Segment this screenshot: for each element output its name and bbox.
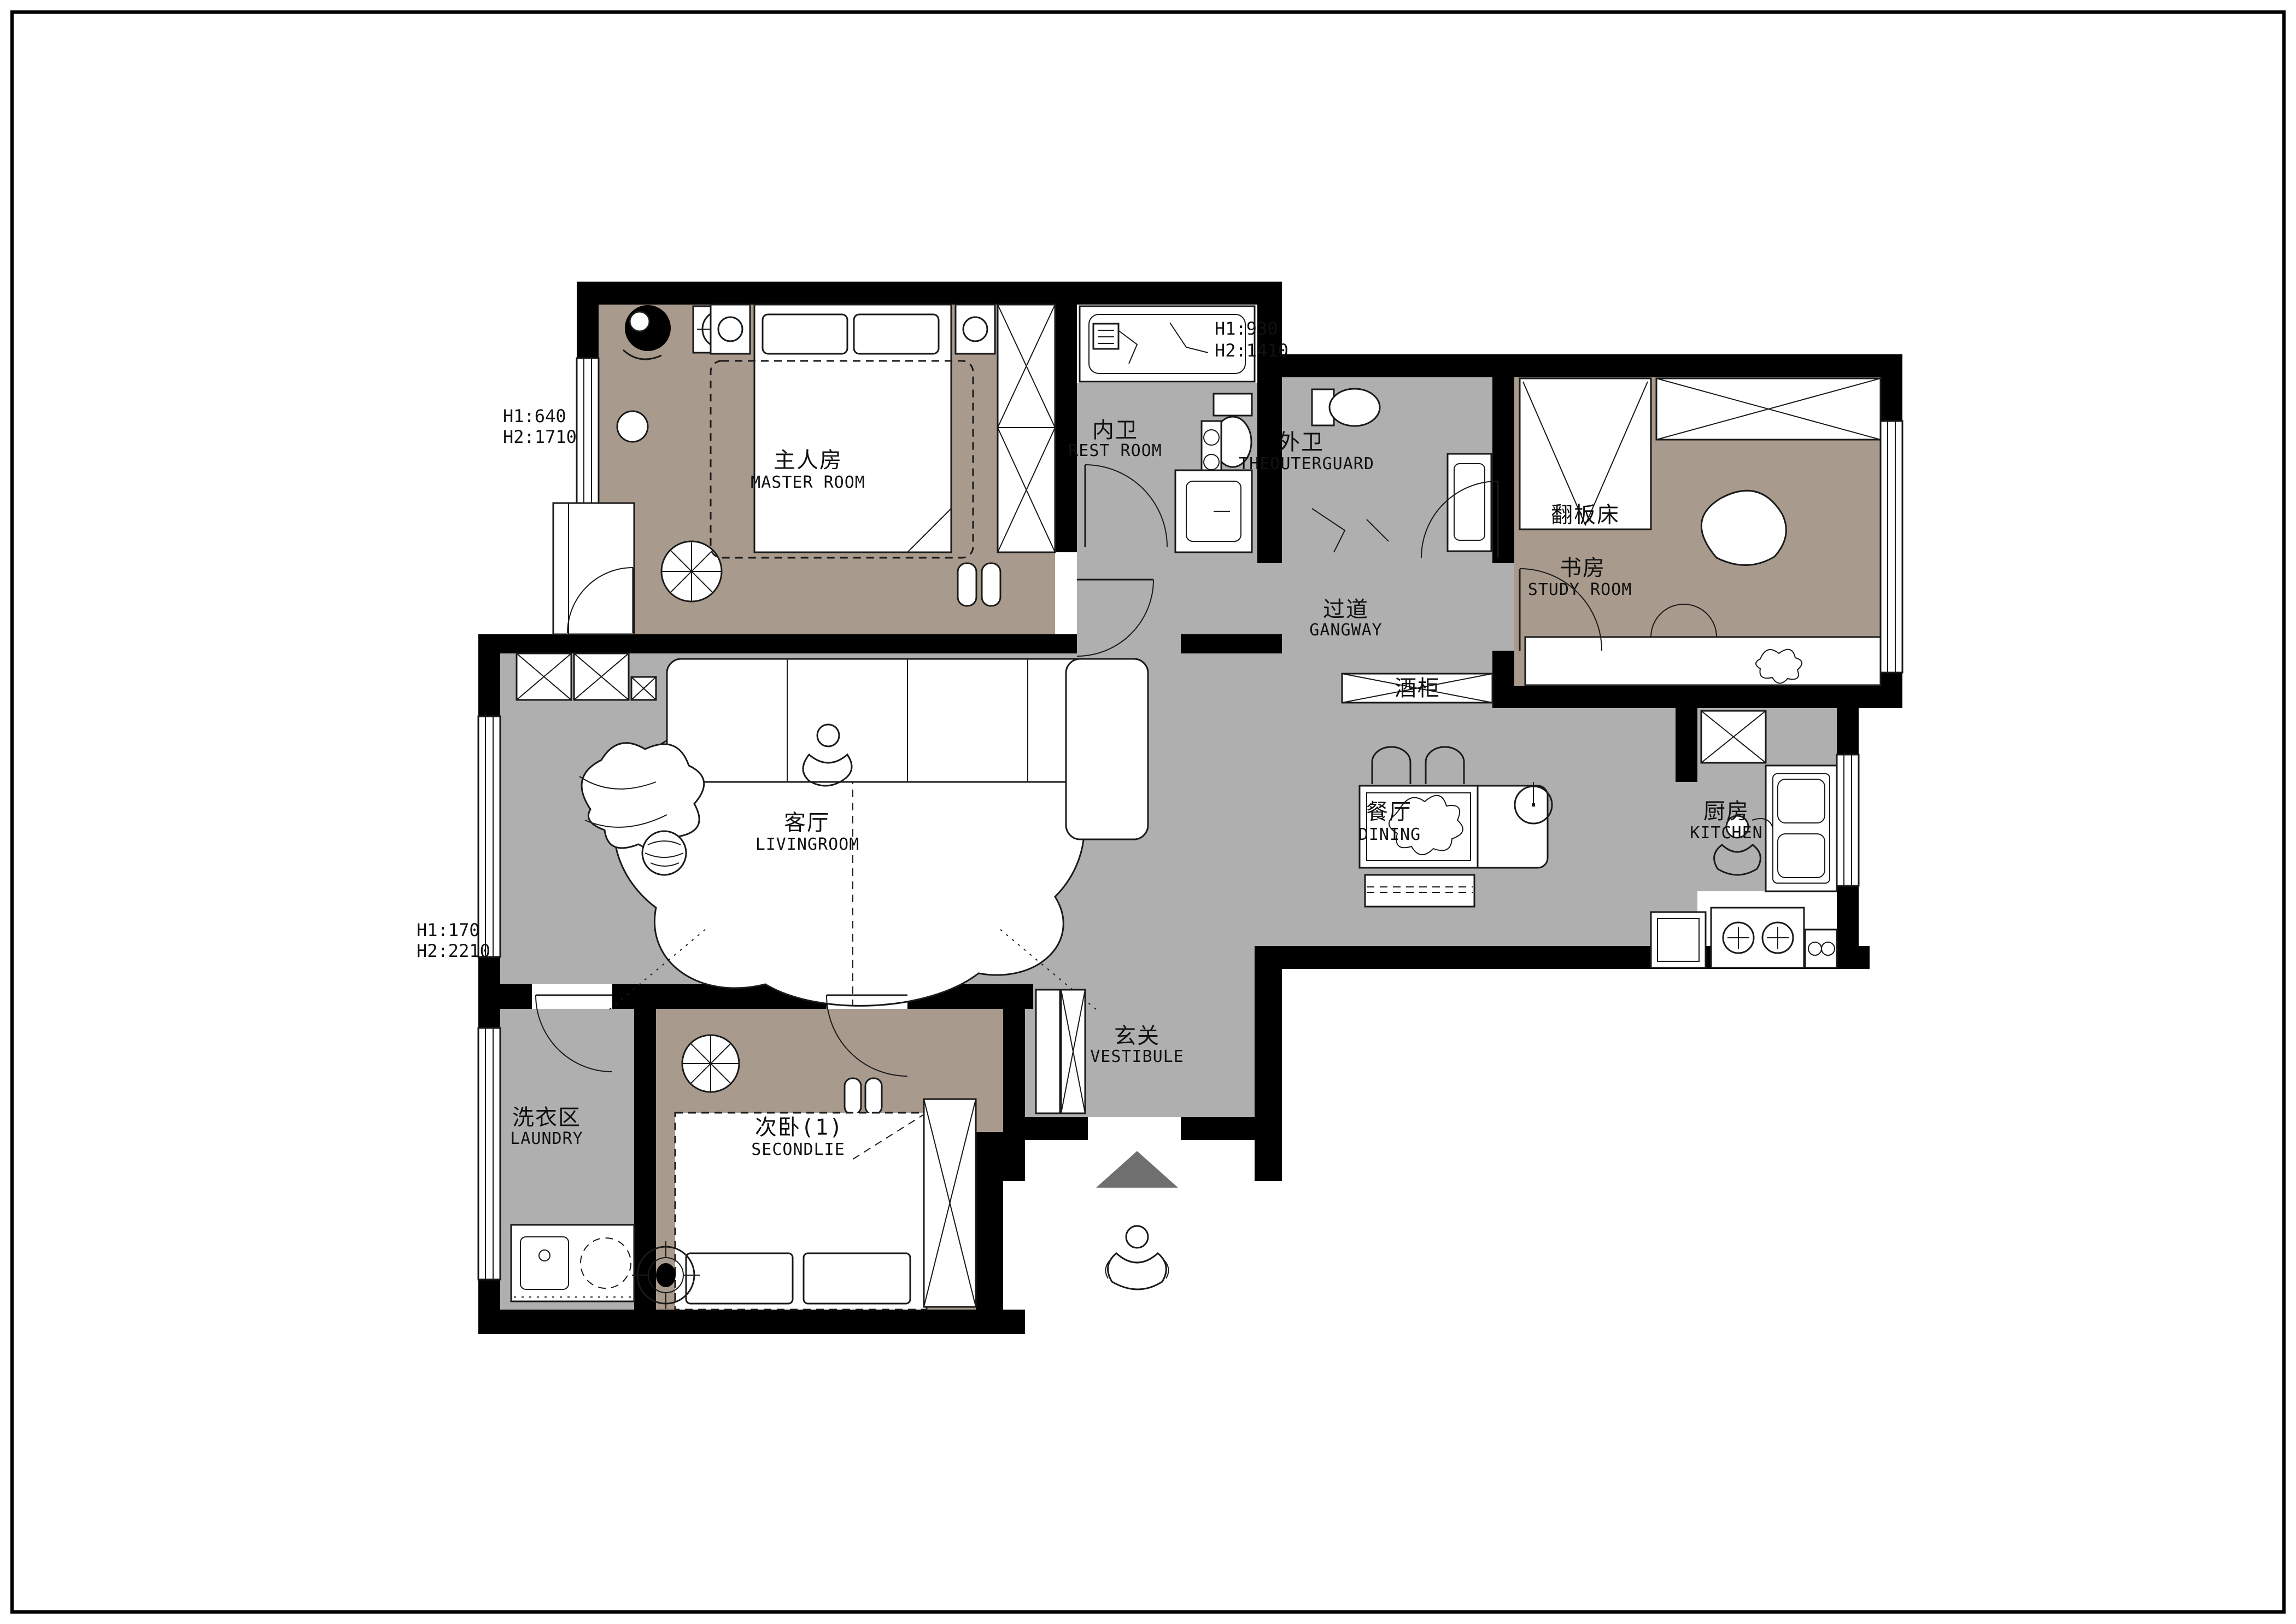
chaise xyxy=(1066,659,1148,839)
label-living-zh: 客厅 xyxy=(784,810,830,836)
laundry-window xyxy=(478,1028,500,1280)
fridge xyxy=(1651,912,1706,968)
label-kitchen-zh: 厨房 xyxy=(1703,799,1749,824)
bedroom-wardrobe xyxy=(924,1099,976,1307)
study-wardrobe xyxy=(1656,378,1881,440)
og-toilet xyxy=(1312,389,1380,426)
label-master-zh: 主人房 xyxy=(774,448,842,473)
fan-icon-2 xyxy=(682,1035,739,1092)
annotation-living-window-1: H1:170 xyxy=(417,920,480,940)
og-vanity xyxy=(1448,454,1491,551)
label-master-en: MASTER ROOM xyxy=(751,473,865,492)
label-gangway-en: GANGWAY xyxy=(1309,621,1382,640)
fan-icon xyxy=(661,541,722,601)
label-outerguard-en: THEOUTERGUARD xyxy=(1239,454,1374,474)
label-secondlie-zh: 次卧(1) xyxy=(755,1115,844,1140)
annotation-shaft-1: H1:930 xyxy=(1215,318,1278,339)
shoe-cabinet xyxy=(1036,990,1085,1113)
nightstand-left xyxy=(711,305,750,354)
label-restroom-zh: 内卫 xyxy=(1092,418,1138,443)
entry-person-icon xyxy=(1106,1226,1169,1289)
entry-arrow-icon xyxy=(1096,1151,1178,1188)
label-dining-en: DINING xyxy=(1358,825,1421,844)
label-secondlie-en: SECONDLIE xyxy=(751,1140,845,1159)
laundry-counter xyxy=(511,1225,634,1301)
label-outerguard-zh: 外卫 xyxy=(1278,430,1324,455)
label-flip-bed: 翻板床 xyxy=(1551,503,1620,528)
annotation-master-window-2: H2:1710 xyxy=(503,427,577,447)
ball-stool xyxy=(642,831,686,875)
stove xyxy=(1711,908,1804,968)
label-wine-cabinet: 酒柜 xyxy=(1395,676,1440,701)
label-laundry-zh: 洗衣区 xyxy=(512,1105,581,1130)
dining-bench xyxy=(1365,875,1474,907)
label-gangway-zh: 过道 xyxy=(1323,597,1369,622)
study-window xyxy=(1881,421,1902,673)
upper-cabinet xyxy=(1701,711,1766,763)
label-restroom-en: REST ROOM xyxy=(1068,441,1162,460)
master-window xyxy=(577,358,599,517)
label-dining-zh: 餐厅 xyxy=(1366,799,1412,825)
small-appliance xyxy=(1805,930,1837,968)
label-kitchen-en: KITCHEN xyxy=(1690,823,1762,843)
label-living-en: LIVINGROOM xyxy=(755,835,860,854)
vanity-sink xyxy=(1175,470,1252,552)
side-table xyxy=(617,411,648,442)
label-vestibule-en: VESTIBULE xyxy=(1090,1047,1184,1066)
living-window xyxy=(478,716,500,957)
label-study-en: STUDY ROOM xyxy=(1528,580,1632,599)
label-vestibule-zh: 玄关 xyxy=(1114,1024,1160,1049)
annotation-shaft-2: H2:1410 xyxy=(1215,340,1288,361)
label-laundry-en: LAUNDRY xyxy=(510,1129,583,1148)
kitchen-window xyxy=(1837,755,1859,886)
floorplan-svg: 主人房 MASTER ROOM 内卫 REST ROOM 外卫 THEOUTER… xyxy=(0,0,2296,1624)
sink-counter xyxy=(1766,766,1837,891)
annotation-master-window-1: H1:640 xyxy=(503,406,566,427)
master-wardrobe xyxy=(998,305,1055,552)
balcony xyxy=(553,503,634,634)
floor-plan-page: 主人房 MASTER ROOM 内卫 REST ROOM 外卫 THEOUTER… xyxy=(0,0,2296,1624)
nightstand-right xyxy=(956,305,995,354)
label-study-zh: 书房 xyxy=(1560,556,1606,581)
annotation-living-window-2: H2:2210 xyxy=(417,940,490,961)
